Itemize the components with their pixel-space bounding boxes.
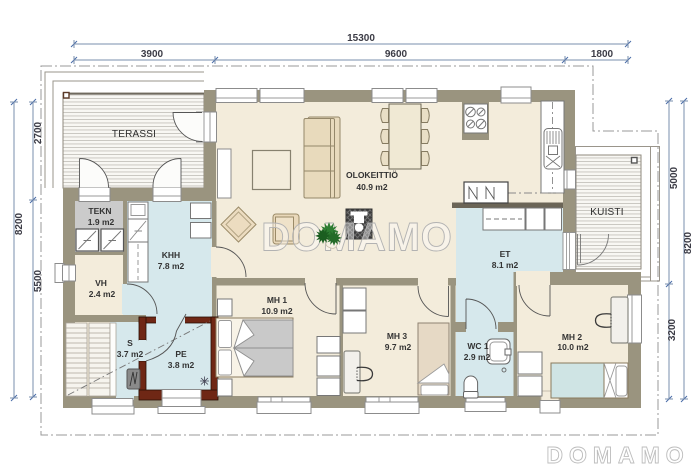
- svg-text:5000: 5000: [669, 166, 680, 189]
- svg-text:3.8 m2: 3.8 m2: [168, 360, 195, 370]
- svg-text:8200: 8200: [14, 212, 25, 235]
- svg-text:1800: 1800: [591, 49, 614, 60]
- svg-text:WC 1: WC 1: [467, 341, 489, 351]
- svg-text:10.0 m2: 10.0 m2: [557, 342, 588, 352]
- svg-text:2700: 2700: [33, 121, 44, 144]
- svg-text:2.9 m2: 2.9 m2: [464, 352, 491, 362]
- svg-text:KHH: KHH: [162, 250, 180, 260]
- svg-text:8200: 8200: [683, 231, 694, 254]
- svg-text:S: S: [127, 338, 133, 348]
- svg-text:TEKN: TEKN: [88, 206, 111, 216]
- svg-text:5500: 5500: [33, 269, 44, 292]
- svg-text:40.9 m2: 40.9 m2: [356, 182, 387, 192]
- svg-text:1.9 m2: 1.9 m2: [88, 217, 115, 227]
- svg-text:9600: 9600: [385, 49, 408, 60]
- svg-text:DOMAMO: DOMAMO: [261, 216, 452, 260]
- svg-text:VH: VH: [95, 278, 107, 288]
- svg-text:MH 3: MH 3: [387, 331, 408, 341]
- svg-text:9.7 m2: 9.7 m2: [385, 342, 412, 352]
- svg-text:PE: PE: [175, 349, 187, 359]
- svg-text:MH 2: MH 2: [562, 332, 583, 342]
- svg-text:3900: 3900: [141, 49, 164, 60]
- svg-text:8.1 m2: 8.1 m2: [492, 260, 519, 270]
- svg-text:MH 1: MH 1: [267, 295, 288, 305]
- svg-text:KUISTI: KUISTI: [590, 207, 623, 218]
- svg-text:10.9 m2: 10.9 m2: [261, 306, 292, 316]
- svg-text:DOMAMO: DOMAMO: [546, 442, 689, 468]
- svg-text:OLOKEITTIÖ: OLOKEITTIÖ: [346, 170, 398, 180]
- svg-text:3200: 3200: [667, 318, 678, 341]
- svg-text:ET: ET: [500, 249, 512, 259]
- svg-text:15300: 15300: [347, 33, 375, 44]
- svg-text:3.7 m2: 3.7 m2: [117, 349, 144, 359]
- svg-text:2.4 m2: 2.4 m2: [89, 289, 116, 299]
- svg-text:TERASSI: TERASSI: [112, 129, 156, 140]
- svg-text:7.8 m2: 7.8 m2: [158, 261, 185, 271]
